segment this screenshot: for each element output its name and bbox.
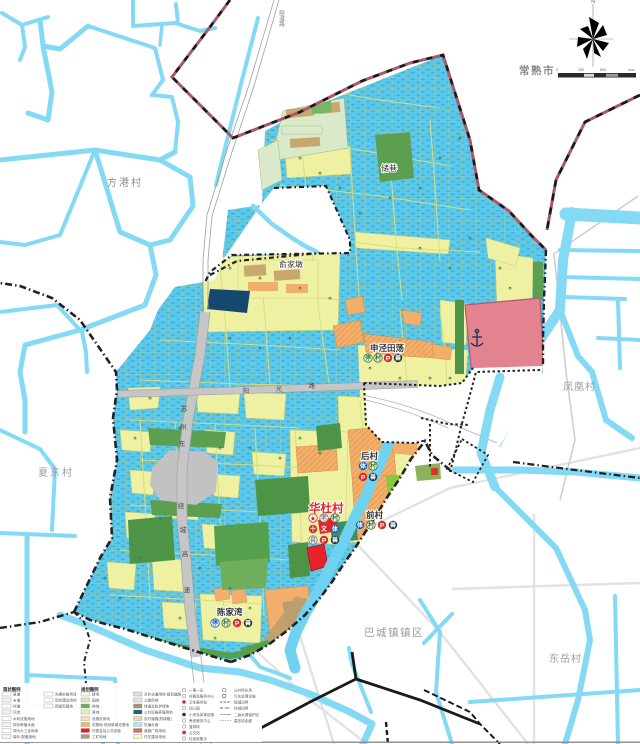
svg-text:后村: 后村 xyxy=(361,451,379,461)
svg-text:县道: 县道 xyxy=(13,692,21,697)
svg-text:对外交通用地·规划道路: 对外交通用地·规划道路 xyxy=(144,692,182,697)
svg-text:1km: 1km xyxy=(628,68,635,72)
svg-text:宅基地·规划新增宅基地: 宅基地·规划新增宅基地 xyxy=(92,722,130,727)
svg-text:N: N xyxy=(591,0,595,5)
svg-text:P: P xyxy=(380,522,385,529)
svg-text:光: 光 xyxy=(276,385,282,393)
svg-text:兽: 兽 xyxy=(390,521,396,529)
svg-text:兽: 兽 xyxy=(395,354,401,362)
svg-text:自: 自 xyxy=(310,536,316,544)
svg-text:村: 村 xyxy=(222,619,229,627)
svg-text:前村: 前村 xyxy=(366,510,384,520)
svg-text:华杜村: 华杜村 xyxy=(309,501,344,515)
svg-text:P: P xyxy=(235,620,240,627)
svg-text:现状建设用地: 现状建设用地 xyxy=(55,698,77,703)
svg-text:停: 停 xyxy=(365,354,371,362)
svg-text:村委及服务中心: 村委及服务中心 xyxy=(189,694,215,699)
svg-text:公路用地: 公路用地 xyxy=(144,698,159,703)
svg-text:★: ★ xyxy=(310,515,316,522)
svg-text:水利设施用地: 水利设施用地 xyxy=(13,716,35,721)
svg-text:村: 村 xyxy=(331,514,338,522)
svg-text:道路广场用地: 道路广场用地 xyxy=(144,728,166,733)
svg-text:东岳村: 东岳村 xyxy=(549,652,582,665)
svg-text:路: 路 xyxy=(309,382,315,390)
svg-text:速: 速 xyxy=(184,586,191,594)
svg-text:乡道: 乡道 xyxy=(13,698,21,703)
svg-text:二级水源保护区: 二级水源保护区 xyxy=(234,712,260,717)
svg-text:储巷: 储巷 xyxy=(381,163,397,173)
svg-text:绕: 绕 xyxy=(178,501,185,510)
svg-text:村: 村 xyxy=(367,521,374,529)
svg-text:农村道路(机耕路): 农村道路(机耕路) xyxy=(144,716,172,721)
svg-text:小学及体育设施: 小学及体育设施 xyxy=(189,712,215,717)
svg-text:体: 体 xyxy=(360,462,367,470)
svg-text:绿道及防护绿地: 绿道及防护绿地 xyxy=(144,704,170,709)
svg-text:幼儿园: 幼儿园 xyxy=(189,706,200,711)
svg-text:耕地: 耕地 xyxy=(92,692,100,697)
svg-text:文: 文 xyxy=(320,525,328,533)
svg-text:兽: 兽 xyxy=(245,619,251,627)
svg-text:养老服务中心: 养老服务中心 xyxy=(189,718,211,723)
svg-text:体: 体 xyxy=(332,525,339,533)
svg-text:园地: 园地 xyxy=(92,698,100,703)
svg-text:村域边界: 村域边界 xyxy=(234,706,249,711)
svg-text:申泾田荡: 申泾田荡 xyxy=(370,343,405,353)
svg-text:公共停车场: 公共停车场 xyxy=(234,688,252,693)
svg-text:卫生服务站: 卫生服务站 xyxy=(189,700,207,705)
svg-text:镇域边界: 镇域边界 xyxy=(234,700,249,705)
svg-text:坑塘水面: 坑塘水面 xyxy=(144,722,159,727)
svg-text:老: 老 xyxy=(320,514,327,522)
svg-text:村: 村 xyxy=(369,462,376,470)
svg-text:村委会及公共设施: 村委会及公共设施 xyxy=(92,728,121,733)
svg-text:凤凰村: 凤凰村 xyxy=(563,380,596,393)
svg-text:0: 0 xyxy=(556,68,558,72)
svg-text:篮球场: 篮球场 xyxy=(189,724,200,729)
svg-text:一事一议: 一事一议 xyxy=(189,688,204,693)
svg-text:预留宅基地: 预留宅基地 xyxy=(55,704,73,709)
svg-text:现状养殖水面: 现状养殖水面 xyxy=(13,722,35,727)
svg-text:阳: 阳 xyxy=(243,387,249,395)
svg-text:体: 体 xyxy=(357,521,364,529)
svg-text:草地: 草地 xyxy=(92,710,100,715)
svg-text:河流: 河流 xyxy=(13,710,21,715)
svg-text:阳澄路: 阳澄路 xyxy=(278,9,285,28)
svg-text:城: 城 xyxy=(180,526,187,534)
svg-text:增补-配套用地: 增补-配套用地 xyxy=(13,734,36,739)
svg-text:公共设施养殖用地: 公共设施养殖用地 xyxy=(144,710,173,715)
svg-text:村庄建设用地: 村庄建设用地 xyxy=(144,734,166,739)
svg-text:P: P xyxy=(361,474,366,481)
svg-text:设施农用地: 设施农用地 xyxy=(92,716,110,721)
svg-text:公交站: 公交站 xyxy=(189,730,200,735)
svg-text:先期实施项目: 先期实施项目 xyxy=(55,692,77,697)
svg-text:高: 高 xyxy=(182,549,189,558)
svg-text:州: 州 xyxy=(180,424,187,431)
svg-text:现为大三优用地: 现为大三优用地 xyxy=(13,728,39,733)
svg-text:十: 十 xyxy=(310,525,316,533)
svg-text:工矿用地: 工矿用地 xyxy=(92,734,107,739)
svg-text:P: P xyxy=(386,355,391,362)
svg-text:兽: 兽 xyxy=(332,536,338,544)
svg-text:P: P xyxy=(322,537,327,544)
svg-text:苏: 苏 xyxy=(181,404,188,413)
svg-text:林地: 林地 xyxy=(92,704,100,709)
svg-text:陈家湾: 陈家湾 xyxy=(217,607,243,617)
svg-text:方港村: 方港村 xyxy=(107,176,143,189)
svg-text:停: 停 xyxy=(212,619,218,627)
svg-text:村: 村 xyxy=(374,354,381,362)
svg-text:巴城镇镇区: 巴城镇镇区 xyxy=(364,626,424,639)
svg-text:俞家墩: 俞家墩 xyxy=(279,259,303,269)
svg-text:夏东村: 夏东村 xyxy=(38,466,74,479)
svg-text:兽: 兽 xyxy=(370,473,376,481)
svg-text:村道: 村道 xyxy=(13,704,21,709)
svg-text:500: 500 xyxy=(600,68,606,72)
svg-text:垃圾收集点: 垃圾收集点 xyxy=(189,736,207,741)
svg-text:东: 东 xyxy=(179,439,186,448)
svg-text:常熟市: 常熟市 xyxy=(519,64,555,77)
svg-text:250: 250 xyxy=(578,68,584,72)
svg-text:高压线走廊: 高压线走廊 xyxy=(234,718,252,723)
svg-text:污水处理设施: 污水处理设施 xyxy=(234,694,256,699)
